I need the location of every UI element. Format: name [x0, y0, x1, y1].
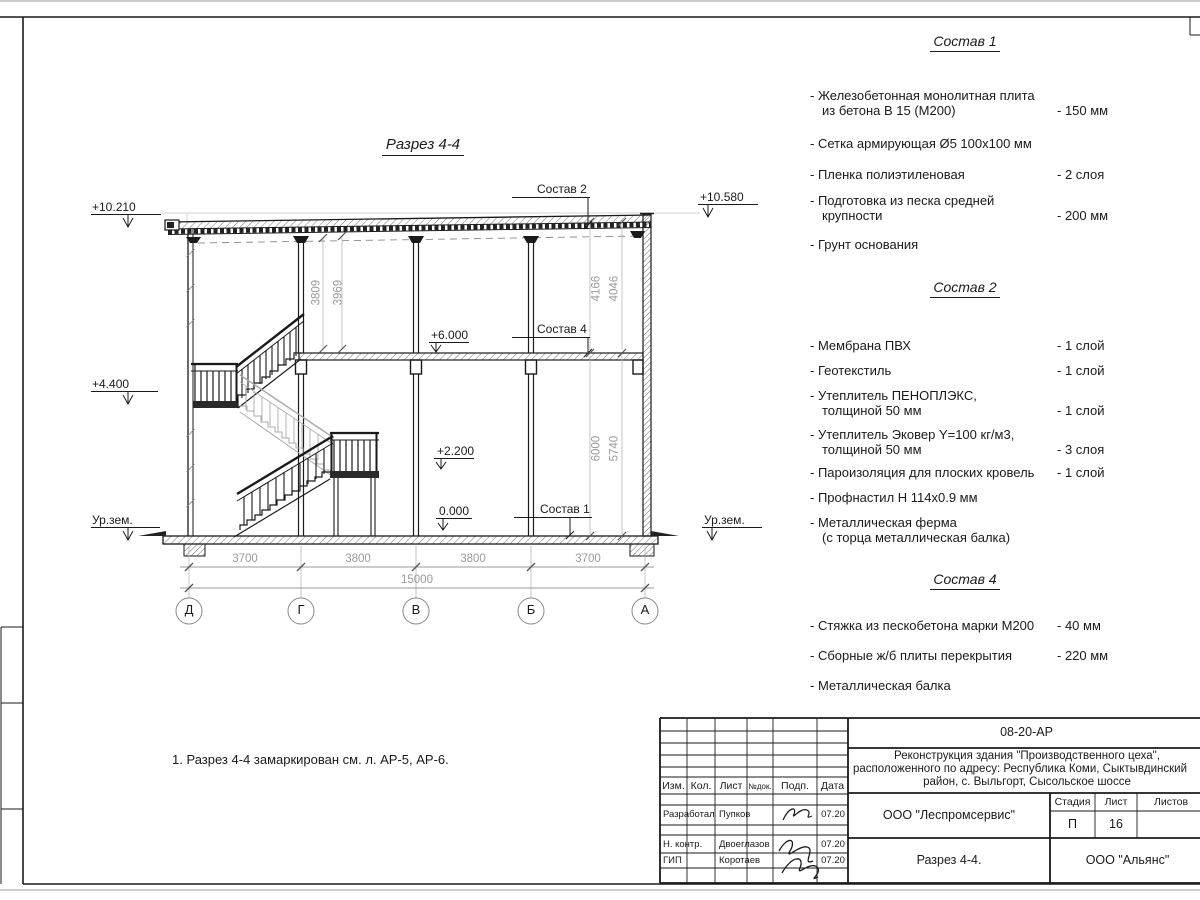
elevation-floor1: 0.000	[439, 505, 469, 519]
project-line1: Реконструкция здания "Производственного …	[849, 750, 1200, 763]
floor-slab	[299, 353, 643, 360]
composition-4-title: Состав 4	[880, 571, 1050, 587]
elevation-marks	[91, 205, 762, 541]
section-title: Разрез 4-4	[358, 136, 488, 153]
row-name: Пупков	[719, 810, 750, 821]
row-date: 07.20	[819, 856, 847, 867]
list-item: - Подготовка из песка среднейкрупности- …	[810, 193, 1150, 223]
callout-floor1: Состав 1	[540, 503, 590, 517]
list-item: - Металлическая балка	[810, 678, 1150, 693]
list-item: - Пленка полиэтиленовая- 2 слоя	[810, 167, 1150, 182]
signature-nkontr-gip	[779, 840, 818, 878]
elevation-right-top: +10.580	[700, 191, 744, 205]
row-role: Н. контр.	[663, 840, 702, 851]
callout-leaders	[512, 198, 592, 540]
stage-label: Стадия	[1050, 796, 1095, 808]
dim-height-4046: 4046	[608, 267, 621, 311]
axis-d: Д	[176, 603, 202, 618]
vertical-dims	[319, 218, 626, 540]
list-item: - Сборные ж/б плиты перекрытия- 220 мм	[810, 648, 1150, 663]
column-b	[523, 236, 539, 536]
signature-razrabotal	[783, 809, 812, 820]
elevation-left-mid: +4.400	[92, 378, 129, 392]
section-walls	[186, 214, 654, 537]
row-name: Двоеглазов	[719, 840, 770, 851]
list-item: - Сетка армирующая Ø5 100х100 мм	[810, 136, 1150, 151]
list-item: - Железобетонная монолитная плитаиз бето…	[810, 88, 1150, 118]
col-data: Дата	[817, 780, 848, 792]
axis-b: Б	[518, 603, 544, 618]
drawing-sheet: Разрез 4-4 +10.210 +4.400 Ур.зем. +10.58…	[0, 0, 1200, 900]
col-podp: Подп.	[773, 780, 817, 792]
elevation-landing: +2.200	[437, 445, 474, 459]
sheets-label: Листов	[1137, 796, 1200, 808]
dim-total: 15000	[387, 574, 447, 587]
dim-height-3969: 3969	[332, 271, 345, 315]
project-line3: район, с. Выльгорт, Сысольское шоссе	[849, 776, 1200, 789]
dim-height-5740: 5740	[608, 427, 621, 471]
org-name: ООО "Леспромсервис"	[849, 808, 1049, 822]
sheet-label: Лист	[1095, 796, 1137, 808]
list-item: - Профнастил Н 114х0.9 мм	[810, 490, 1150, 505]
dim-height-4166: 4166	[590, 267, 603, 311]
col-ndoc: №док.	[747, 782, 773, 791]
elevation-floor2: +6.000	[431, 329, 468, 343]
list-item: - Мембрана ПВХ- 1 слой	[810, 338, 1150, 353]
sheet-note: 1. Разрез 4-4 замаркирован см. л. АР-5, …	[172, 753, 449, 768]
row-date: 07.20	[819, 810, 847, 821]
dim-span-4: 3700	[558, 553, 618, 566]
list-item: - Геотекстиль- 1 слой	[810, 363, 1150, 378]
sheet-value: 16	[1095, 817, 1137, 831]
list-item: - Стяжка из пескобетона марки М200- 40 м…	[810, 618, 1150, 633]
callout-roof: Состав 2	[537, 183, 587, 197]
elevation-left-top: +10.210	[92, 201, 136, 215]
col-kol: Кол.	[687, 780, 715, 792]
list-item: - Утеплитель Эковер Y=100 кг/м3,толщиной…	[810, 427, 1150, 457]
project-line2: расположенного по адресу: Республика Ком…	[853, 763, 1187, 776]
row-date: 07.20	[819, 840, 847, 851]
col-list: Лист	[715, 780, 747, 792]
contractor-name: ООО "Альянс"	[1050, 853, 1200, 867]
dim-height-3809: 3809	[310, 271, 323, 315]
dim-height-6000: 6000	[590, 427, 603, 471]
elevation-ground-left: Ур.зем.	[92, 514, 133, 528]
axis-g: Г	[288, 603, 314, 618]
stage-value: П	[1050, 817, 1095, 831]
composition-1-title: Состав 1	[880, 33, 1050, 49]
list-item: - Грунт основания	[810, 237, 1150, 252]
row-name: Коротаев	[719, 856, 760, 867]
list-item: - Пароизоляция для плоских кровель- 1 сл…	[810, 465, 1150, 480]
dim-span-2: 3800	[328, 553, 388, 566]
axis-a: А	[632, 603, 658, 618]
list-item: - Металлическая ферма(с торца металличес…	[810, 515, 1150, 545]
col-izm: Изм.	[660, 780, 687, 792]
callout-floor2: Состав 4	[537, 323, 587, 337]
column-v	[408, 236, 424, 536]
list-item: - Утеплитель ПЕНОПЛЭКС,толщиной 50 мм- 1…	[810, 388, 1150, 418]
section-roof	[162, 213, 700, 243]
dim-span-1: 3700	[215, 553, 275, 566]
dim-span-3: 3800	[443, 553, 503, 566]
axis-v: В	[403, 603, 429, 618]
elevation-ground-right: Ур.зем.	[704, 514, 745, 528]
row-role: Разработал	[663, 810, 715, 821]
doc-number: 08-20-АР	[900, 725, 1153, 739]
row-role: ГИП	[663, 856, 682, 867]
composition-2-title: Состав 2	[880, 279, 1050, 295]
drawing-name: Разрез 4-4.	[849, 853, 1049, 867]
staircase	[191, 314, 379, 537]
